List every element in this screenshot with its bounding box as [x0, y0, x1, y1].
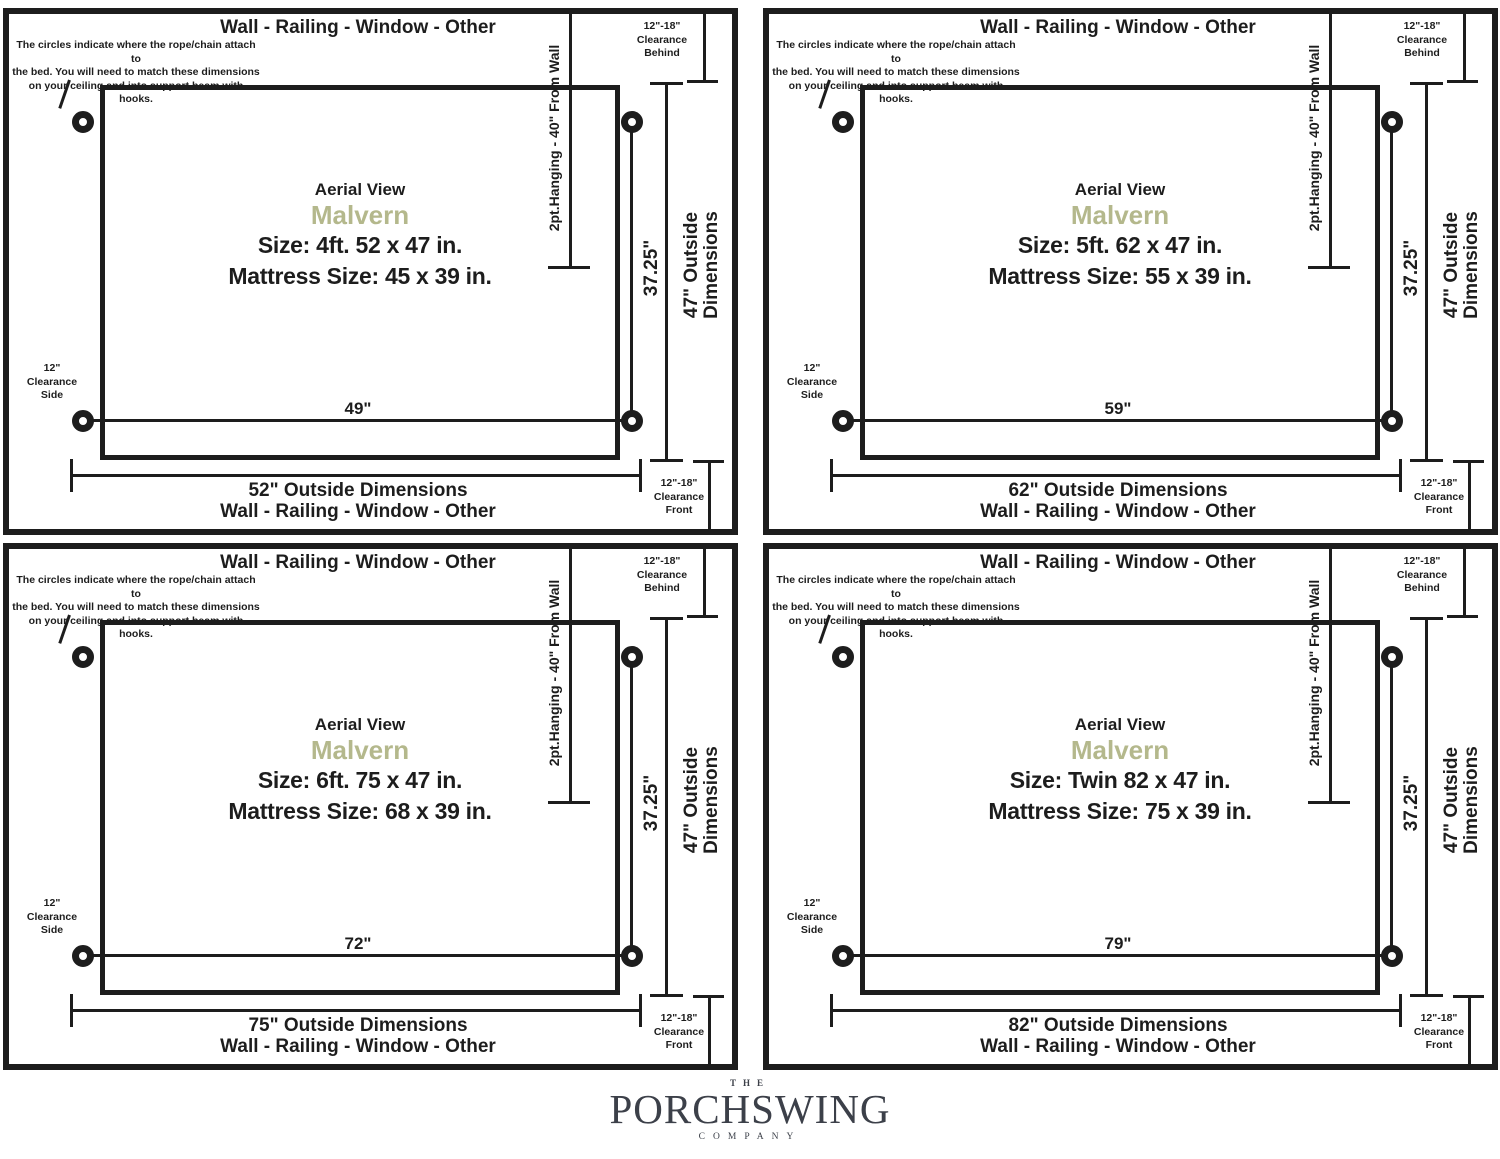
hook-span-label: 72" [108, 934, 608, 954]
aerial-view-label: Aerial View [100, 180, 620, 200]
clearance-behind-label: 12"-18" Clearance Behind [1372, 20, 1472, 61]
clearance-behind-tick [687, 80, 718, 83]
wall-label-bottom: Wall - Railing - Window - Other [108, 502, 608, 522]
hook-span-line-horizontal [843, 954, 1392, 957]
outside-height-tick-bottom [650, 994, 683, 997]
outside-height-dimension-line [1425, 84, 1428, 462]
hanging-dimension-line [569, 8, 572, 269]
rope-attachment-circle [72, 945, 94, 967]
aerial-view-label: Aerial View [860, 715, 1380, 735]
hanging-dimension-line [1329, 543, 1332, 804]
hook-span-line-horizontal [83, 954, 632, 957]
hook-span-line-horizontal [83, 419, 632, 422]
hook-drop-dimension: 37.25" [1401, 775, 1423, 832]
hook-span-line-vertical [1390, 657, 1393, 956]
hook-span-label: 79" [868, 934, 1368, 954]
rope-attachment-circle [1381, 945, 1403, 967]
outside-height-tick-top [650, 617, 683, 620]
clearance-front-line [1468, 462, 1471, 529]
outside-width-dimension-line [72, 474, 642, 477]
model-name: Malvern [860, 200, 1380, 230]
hanging-dimension-tick [1308, 266, 1350, 269]
outside-width-tick-left [830, 459, 833, 492]
model-name: Malvern [100, 735, 620, 765]
clearance-front-label: 12"-18" Clearance Front [633, 477, 725, 518]
wall-label-top: Wall - Railing - Window - Other [863, 18, 1373, 38]
note-line: The circles indicate where the rope/chai… [771, 39, 1021, 66]
outside-width-dimension-line [72, 1009, 642, 1012]
rope-attachment-circle [832, 111, 854, 133]
logo-name: PORCHSWING [0, 1088, 1500, 1130]
outside-width-tick-left [70, 994, 73, 1027]
wall-label-top: Wall - Railing - Window - Other [103, 18, 613, 38]
bed-info: Aerial View Malvern Size: 6ft. 75 x 47 i… [100, 715, 620, 827]
size-label: Size: 6ft. 75 x 47 in. [100, 765, 620, 796]
clearance-front-line [1468, 997, 1471, 1064]
rope-attachment-circle [72, 111, 94, 133]
hook-span-line-vertical [1390, 122, 1393, 421]
outside-width-tick-left [830, 994, 833, 1027]
clearance-front-tick [1453, 460, 1484, 463]
outside-height-label: 47" Outside Dimensions [1442, 211, 1482, 319]
size-guide-sheet: Wall - Railing - Window - Other The circ… [0, 0, 1500, 1159]
outside-width-dimension-line [832, 474, 1402, 477]
clearance-front-line [708, 997, 711, 1064]
outside-height-tick-bottom [1410, 459, 1443, 462]
hook-span-line-vertical [630, 122, 633, 421]
outside-height-label: 47" Outside Dimensions [682, 746, 722, 854]
size-diagram-panel: Wall - Railing - Window - Other The circ… [3, 543, 738, 1070]
hook-span-label: 49" [108, 399, 608, 419]
wall-label-bottom: Wall - Railing - Window - Other [868, 502, 1368, 522]
hanging-dimension-tick [548, 801, 590, 804]
rope-attachment-circle [1381, 410, 1403, 432]
rope-attachment-circle [1381, 646, 1403, 668]
wall-label-top: Wall - Railing - Window - Other [863, 553, 1373, 573]
outside-width-label: 82" Outside Dimensions [868, 1016, 1368, 1036]
rope-attachment-circle [621, 945, 643, 967]
hanging-dimension-line [569, 543, 572, 804]
porchswing-logo: THE PORCHSWING COMPANY [0, 1078, 1500, 1142]
rope-attachment-circle [72, 410, 94, 432]
clearance-behind-tick [687, 615, 718, 618]
size-diagram-panel: Wall - Railing - Window - Other The circ… [3, 8, 738, 535]
outside-width-tick-left [70, 459, 73, 492]
clearance-front-line [708, 462, 711, 529]
bed-info: Aerial View Malvern Size: 5ft. 62 x 47 i… [860, 180, 1380, 292]
mattress-size-label: Mattress Size: 55 x 39 in. [860, 261, 1380, 292]
rope-attachment-circle [1381, 111, 1403, 133]
mattress-size-label: Mattress Size: 45 x 39 in. [100, 261, 620, 292]
hook-span-label: 59" [868, 399, 1368, 419]
hanging-dimension-line [1329, 8, 1332, 269]
outside-width-dimension-line [832, 1009, 1402, 1012]
hanging-label: 2pt.Hanging - 40" From Wall [546, 580, 562, 767]
rope-attachment-circle [621, 410, 643, 432]
clearance-behind-label: 12"-18" Clearance Behind [612, 555, 712, 596]
clearance-front-label: 12"-18" Clearance Front [1393, 477, 1485, 518]
note-line: the bed. You will need to match these di… [771, 601, 1021, 615]
rope-attachment-circle [621, 646, 643, 668]
clearance-front-tick [693, 995, 724, 998]
outside-width-label: 75" Outside Dimensions [108, 1016, 608, 1036]
hook-drop-dimension: 37.25" [641, 240, 663, 297]
bed-info: Aerial View Malvern Size: Twin 82 x 47 i… [860, 715, 1380, 827]
clearance-behind-tick [1447, 80, 1478, 83]
size-label: Size: 5ft. 62 x 47 in. [860, 230, 1380, 261]
hanging-label: 2pt.Hanging - 40" From Wall [1306, 45, 1322, 232]
outside-height-label: 47" Outside Dimensions [682, 211, 722, 319]
aerial-view-label: Aerial View [100, 715, 620, 735]
outside-height-tick-top [1410, 82, 1443, 85]
clearance-front-tick [693, 460, 724, 463]
hook-span-line-horizontal [843, 419, 1392, 422]
outside-width-label: 52" Outside Dimensions [108, 481, 608, 501]
wall-label-top: Wall - Railing - Window - Other [103, 553, 613, 573]
size-diagram-panel: Wall - Railing - Window - Other The circ… [763, 8, 1498, 535]
outside-height-dimension-line [665, 619, 668, 997]
model-name: Malvern [100, 200, 620, 230]
rope-attachment-circle [832, 646, 854, 668]
hook-drop-dimension: 37.25" [1401, 240, 1423, 297]
note-line: The circles indicate where the rope/chai… [771, 574, 1021, 601]
size-diagram-panel: Wall - Railing - Window - Other The circ… [763, 543, 1498, 1070]
rope-attachment-circle [621, 111, 643, 133]
outside-width-label: 62" Outside Dimensions [868, 481, 1368, 501]
rope-attachment-circle [72, 646, 94, 668]
outside-height-label: 47" Outside Dimensions [1442, 746, 1482, 854]
note-line: The circles indicate where the rope/chai… [11, 574, 261, 601]
wall-label-bottom: Wall - Railing - Window - Other [108, 1037, 608, 1057]
outside-height-tick-bottom [1410, 994, 1443, 997]
hanging-dimension-tick [1308, 801, 1350, 804]
aerial-view-label: Aerial View [860, 180, 1380, 200]
note-line: the bed. You will need to match these di… [771, 66, 1021, 80]
clearance-behind-tick [1447, 615, 1478, 618]
clearance-front-label: 12"-18" Clearance Front [1393, 1012, 1485, 1053]
outside-height-tick-top [650, 82, 683, 85]
note-line: the bed. You will need to match these di… [11, 66, 261, 80]
mattress-size-label: Mattress Size: 75 x 39 in. [860, 796, 1380, 827]
size-label: Size: Twin 82 x 47 in. [860, 765, 1380, 796]
hook-span-line-vertical [630, 657, 633, 956]
clearance-side-label: 12" Clearance Side [767, 362, 857, 403]
note-line: the bed. You will need to match these di… [11, 601, 261, 615]
outside-height-dimension-line [1425, 619, 1428, 997]
bed-info: Aerial View Malvern Size: 4ft. 52 x 47 i… [100, 180, 620, 292]
clearance-side-label: 12" Clearance Side [767, 897, 857, 938]
clearance-side-label: 12" Clearance Side [7, 897, 97, 938]
outside-height-dimension-line [665, 84, 668, 462]
clearance-front-label: 12"-18" Clearance Front [633, 1012, 725, 1053]
note-line: The circles indicate where the rope/chai… [11, 39, 261, 66]
rope-attachment-circle [832, 945, 854, 967]
outside-height-tick-bottom [650, 459, 683, 462]
mattress-size-label: Mattress Size: 68 x 39 in. [100, 796, 620, 827]
hanging-dimension-tick [548, 266, 590, 269]
logo-company: COMPANY [0, 1132, 1500, 1142]
hanging-label: 2pt.Hanging - 40" From Wall [546, 45, 562, 232]
clearance-behind-label: 12"-18" Clearance Behind [1372, 555, 1472, 596]
hook-drop-dimension: 37.25" [641, 775, 663, 832]
outside-height-tick-top [1410, 617, 1443, 620]
clearance-behind-label: 12"-18" Clearance Behind [612, 20, 712, 61]
wall-label-bottom: Wall - Railing - Window - Other [868, 1037, 1368, 1057]
clearance-side-label: 12" Clearance Side [7, 362, 97, 403]
rope-attachment-circle [832, 410, 854, 432]
hanging-label: 2pt.Hanging - 40" From Wall [1306, 580, 1322, 767]
model-name: Malvern [860, 735, 1380, 765]
clearance-front-tick [1453, 995, 1484, 998]
size-label: Size: 4ft. 52 x 47 in. [100, 230, 620, 261]
